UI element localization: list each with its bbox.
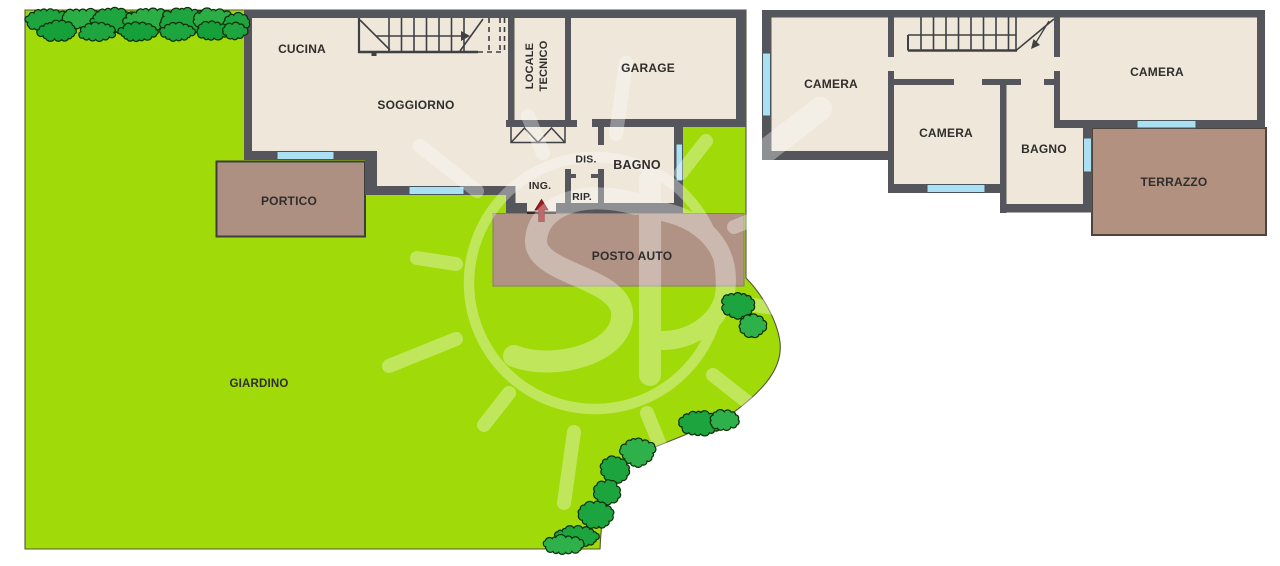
svg-text:LOCALE: LOCALE — [524, 43, 536, 89]
svg-text:CAMERA: CAMERA — [1130, 65, 1184, 79]
svg-text:SOGGIORNO: SOGGIORNO — [377, 98, 454, 112]
svg-text:POSTO AUTO: POSTO AUTO — [592, 249, 672, 263]
svg-text:TERRAZZO: TERRAZZO — [1141, 175, 1208, 189]
svg-text:GARAGE: GARAGE — [621, 61, 675, 75]
svg-text:BAGNO: BAGNO — [613, 158, 661, 172]
svg-text:TECNICO: TECNICO — [538, 40, 550, 91]
svg-text:CAMERA: CAMERA — [919, 126, 973, 140]
svg-text:BAGNO: BAGNO — [1021, 142, 1067, 156]
svg-text:PORTICO: PORTICO — [261, 194, 317, 208]
svg-text:CUCINA: CUCINA — [278, 42, 326, 56]
svg-text:DIS.: DIS. — [575, 154, 596, 166]
svg-text:RIP.: RIP. — [572, 191, 592, 203]
svg-text:ING.: ING. — [529, 180, 551, 192]
svg-text:GIARDINO: GIARDINO — [229, 378, 288, 390]
svg-text:CAMERA: CAMERA — [804, 77, 858, 91]
